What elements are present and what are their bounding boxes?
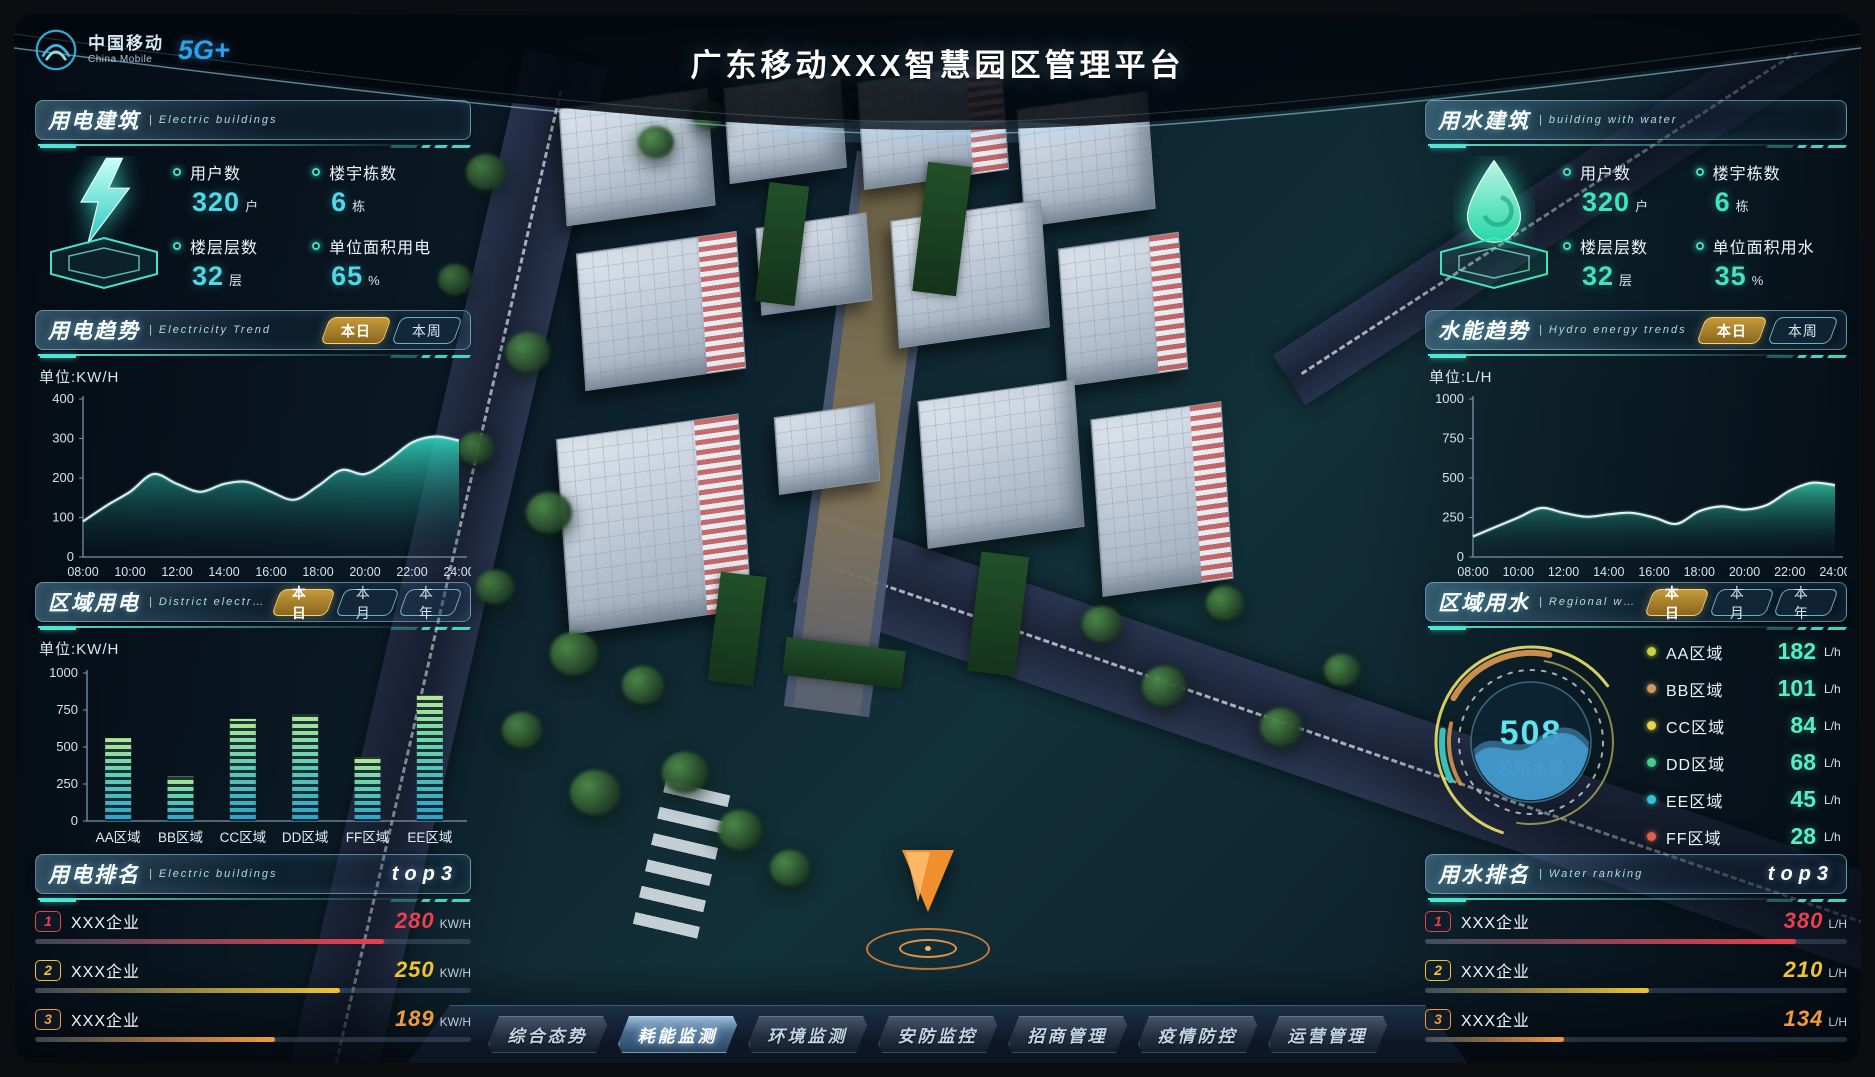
legend-dot-icon	[1647, 758, 1656, 767]
time-range-tabs: 本日本周	[325, 317, 458, 344]
svg-text:200: 200	[52, 470, 74, 485]
rank-badge: 2	[1425, 960, 1451, 981]
ranking-row: 3XXX企业134L/H	[1425, 1006, 1847, 1042]
legend-dot-icon	[1647, 647, 1656, 656]
svg-text:1000: 1000	[49, 665, 78, 680]
rank-progress-track	[35, 939, 471, 944]
svg-text:AA区域: AA区域	[96, 830, 141, 845]
rank-badge: 3	[35, 1009, 61, 1030]
building	[576, 231, 746, 391]
tree	[770, 850, 810, 886]
nav-tab-2[interactable]: 耗能监测	[618, 1016, 737, 1053]
svg-text:08:00: 08:00	[1457, 565, 1488, 579]
panel-water-building: 用水建筑 | building with water 用户数320户楼宇栋数6栋…	[1425, 100, 1847, 292]
panel-title: 区域用水	[1438, 587, 1530, 617]
svg-text:22:00: 22:00	[1774, 565, 1805, 579]
panel-electricity-trend: 用电趋势 | Electricity Trend 本日本周 单位:KW/H 01…	[35, 310, 471, 590]
svg-text:14:00: 14:00	[208, 565, 239, 579]
svg-text:12:00: 12:00	[1548, 565, 1579, 579]
rank-progress-fill	[35, 1037, 275, 1042]
stat-item: 楼宇栋数6栋	[312, 160, 471, 218]
rank-badge: 1	[1425, 911, 1451, 932]
ranking-row: 2XXX企业250KW/H	[35, 957, 471, 993]
svg-text:14:00: 14:00	[1593, 565, 1624, 579]
building	[917, 379, 1084, 549]
rank-progress-fill	[1425, 988, 1649, 993]
svg-text:0: 0	[71, 813, 78, 828]
electricity-trend-chart: 010020030040008:0010:0012:0014:0016:0018…	[35, 389, 471, 590]
svg-text:16:00: 16:00	[255, 565, 286, 579]
svg-text:750: 750	[56, 702, 78, 717]
time-tab-3[interactable]: 本年	[1773, 589, 1839, 616]
rank-progress-track	[1425, 988, 1847, 993]
ranking-row: 2XXX企业210L/H	[1425, 957, 1847, 993]
panel-title: 用水排名	[1438, 859, 1530, 889]
svg-text:400: 400	[52, 391, 74, 406]
svg-text:CC区域: CC区域	[220, 830, 266, 845]
panel-header: 用水建筑 | building with water	[1425, 100, 1847, 140]
panel-subtitle: | Electricity Trend	[149, 324, 271, 336]
electricity-ranking-list: 1XXX企业280KW/H2XXX企业250KW/H3XXX企业189KW/H	[35, 894, 471, 1042]
panel-header: 用电排名 | Electric buildings top3	[35, 854, 471, 894]
bullet-icon	[1696, 168, 1704, 176]
time-tab-1[interactable]: 本日	[320, 317, 392, 344]
panel-title: 用电排名	[48, 859, 140, 889]
svg-text:0: 0	[67, 549, 74, 564]
bullet-icon	[1563, 168, 1571, 176]
rank-progress-track	[35, 1037, 471, 1042]
legend-dot-icon	[1647, 684, 1656, 693]
time-tab-1[interactable]: 本日	[271, 589, 335, 616]
legend-dot-icon	[1647, 832, 1656, 841]
panel-title: 用电建筑	[48, 105, 140, 135]
tree	[622, 666, 664, 704]
tree	[662, 752, 708, 793]
legend-dot-icon	[1647, 721, 1656, 730]
stat-item: 楼层层数32层	[173, 234, 308, 292]
svg-text:20:00: 20:00	[1729, 565, 1760, 579]
unit-label: 单位:KW/H	[39, 638, 471, 659]
panel-subtitle: | Regional water	[1539, 596, 1640, 608]
crosswalk	[632, 781, 731, 944]
top3-badge: top3	[1768, 863, 1834, 886]
building	[774, 403, 881, 495]
total-water-gauge: 508总用水量	[1425, 634, 1637, 851]
hydro-trend-chart: 0250500750100008:0010:0012:0014:0016:001…	[1425, 389, 1847, 590]
legend-item: DD区域68L/h	[1647, 749, 1847, 776]
rank-badge: 1	[35, 911, 61, 932]
electric-building-stats: 用户数320户楼宇栋数6栋楼层层数32层单位面积用电65%	[173, 156, 471, 292]
stat-item: 楼层层数32层	[1563, 234, 1692, 292]
tree	[692, 100, 724, 129]
svg-text:500: 500	[56, 739, 78, 754]
panel-subtitle: | building with water	[1539, 114, 1677, 126]
nav-tab-3[interactable]: 环境监测	[748, 1016, 867, 1053]
panel-header: 水能趋势 | Hydro energy trends 本日本周	[1425, 310, 1847, 350]
stat-item: 用户数320户	[173, 160, 308, 218]
svg-text:18:00: 18:00	[1684, 565, 1715, 579]
time-range-tabs: 本日本月本年	[276, 589, 458, 616]
rank-badge: 2	[35, 960, 61, 981]
panel-subtitle: | Water ranking	[1539, 868, 1643, 880]
svg-text:FF区域: FF区域	[346, 830, 390, 845]
svg-text:18:00: 18:00	[302, 565, 333, 579]
building	[1090, 401, 1233, 597]
svg-text:20:00: 20:00	[349, 565, 380, 579]
svg-text:16:00: 16:00	[1638, 565, 1669, 579]
panel-subtitle: | Electric buildings	[149, 868, 277, 880]
legend-item: FF区域28L/h	[1647, 823, 1847, 850]
stat-item: 楼宇栋数6栋	[1696, 160, 1847, 218]
tree	[550, 632, 598, 675]
svg-text:300: 300	[52, 431, 74, 446]
dashboard-frame: 中国移动 China Mobile 5G+ 广东移动XXX智慧园区管理平台 用电…	[14, 14, 1861, 1063]
panel-header: 用电建筑 | Electric buildings	[35, 100, 471, 140]
bottom-navigation: 综合态势耗能监测环境监测安防监控招商管理疫情防控运营管理	[488, 1016, 1387, 1053]
stat-item: 单位面积用水35%	[1696, 234, 1847, 292]
bullet-icon	[1696, 242, 1704, 250]
bullet-icon	[173, 168, 181, 176]
svg-text:24:00: 24:00	[443, 565, 471, 579]
panel-subtitle: | Hydro energy trends	[1539, 324, 1687, 336]
rank-progress-fill	[35, 988, 340, 993]
rank-progress-track	[35, 988, 471, 993]
rank-progress-fill	[35, 939, 384, 944]
panel-header: 区域用水 | Regional water 本日本月本年	[1425, 582, 1847, 622]
water-ranking-list: 1XXX企业380L/H2XXX企业210L/H3XXX企业134L/H	[1425, 894, 1847, 1042]
svg-text:250: 250	[1442, 510, 1464, 525]
tree	[1324, 654, 1360, 686]
svg-text:0: 0	[1457, 549, 1464, 564]
legend-item: BB区域101L/h	[1647, 675, 1847, 702]
svg-text:10:00: 10:00	[114, 565, 145, 579]
tree	[718, 810, 762, 850]
district-electricity-chart: 02505007501000AA区域BB区域CC区域DD区域FF区域EE区域	[35, 661, 471, 858]
lightning-icon	[35, 156, 173, 292]
legend-dot-icon	[1647, 795, 1656, 804]
water-drop-icon	[1425, 156, 1563, 292]
nav-tab-5[interactable]: 招商管理	[1008, 1016, 1127, 1053]
panel-electricity-ranking: 用电排名 | Electric buildings top3 1XXX企业280…	[35, 854, 471, 1042]
bullet-icon	[312, 168, 320, 176]
svg-text:EE区域: EE区域	[407, 830, 452, 845]
time-range-tabs: 本日本周	[1701, 317, 1834, 344]
rank-progress-track	[1425, 939, 1847, 944]
panel-title: 水能趋势	[1438, 315, 1530, 345]
svg-text:22:00: 22:00	[396, 565, 427, 579]
panel-electric-building: 用电建筑 | Electric buildings 用户数320户楼宇栋数6栋楼…	[35, 100, 471, 292]
rank-progress-fill	[1425, 939, 1796, 944]
time-tab-2[interactable]: 本周	[391, 317, 463, 344]
svg-text:500: 500	[1442, 470, 1464, 485]
nav-tab-1[interactable]: 综合态势	[488, 1016, 607, 1053]
building	[723, 72, 847, 184]
tree	[1206, 586, 1244, 620]
tree	[1260, 708, 1302, 746]
legend-item: CC区域84L/h	[1647, 712, 1847, 739]
svg-text:250: 250	[56, 776, 78, 791]
nav-tab-6[interactable]: 疫情防控	[1138, 1016, 1257, 1053]
ranking-row: 1XXX企业380L/H	[1425, 908, 1847, 944]
ranking-row: 3XXX企业189KW/H	[35, 1006, 471, 1042]
water-legend: AA区域182L/hBB区域101L/hCC区域84L/hDD区域68L/hEE…	[1637, 634, 1847, 851]
svg-text:BB区域: BB区域	[158, 830, 203, 845]
panel-hydro-trend: 水能趋势 | Hydro energy trends 本日本周 单位:L/H 0…	[1425, 310, 1847, 590]
svg-text:1000: 1000	[1435, 391, 1464, 406]
bullet-icon	[1563, 242, 1571, 250]
bullet-icon	[173, 242, 181, 250]
time-tab-2[interactable]: 本周	[1767, 317, 1839, 344]
rank-progress-fill	[1425, 1037, 1564, 1042]
svg-text:DD区域: DD区域	[282, 830, 329, 845]
ranking-row: 1XXX企业280KW/H	[35, 908, 471, 944]
svg-text:08:00: 08:00	[67, 565, 98, 579]
time-tab-1[interactable]: 本日	[1644, 589, 1710, 616]
time-tab-2[interactable]: 本月	[1709, 589, 1775, 616]
nav-tab-4[interactable]: 安防监控	[878, 1016, 997, 1053]
panel-regional-water: 区域用水 | Regional water 本日本月本年 508总用水量 AA区…	[1425, 582, 1847, 851]
building	[1058, 232, 1189, 387]
panel-header: 用水排名 | Water ranking top3	[1425, 854, 1847, 894]
panel-title: 用水建筑	[1438, 105, 1530, 135]
panel-header: 区域用电 | District electricity 本日本月本年	[35, 582, 471, 622]
svg-text:10:00: 10:00	[1503, 565, 1534, 579]
time-tab-2[interactable]: 本月	[335, 589, 399, 616]
panel-subtitle: | District electricity	[149, 596, 267, 608]
panel-title: 区域用电	[48, 587, 140, 617]
rank-badge: 3	[1425, 1009, 1451, 1030]
stat-item: 单位面积用电65%	[312, 234, 471, 292]
time-tab-1[interactable]: 本日	[1696, 317, 1768, 344]
panel-header: 用电趋势 | Electricity Trend 本日本周	[35, 310, 471, 350]
panel-water-ranking: 用水排名 | Water ranking top3 1XXX企业380L/H2X…	[1425, 854, 1847, 1042]
svg-text:100: 100	[52, 510, 74, 525]
svg-text:750: 750	[1442, 431, 1464, 446]
location-marker-icon	[866, 850, 990, 970]
tree	[1082, 606, 1122, 642]
svg-text:24:00: 24:00	[1819, 565, 1847, 579]
unit-label: 单位:KW/H	[39, 366, 471, 387]
rank-progress-track	[1425, 1037, 1847, 1042]
legend-item: AA区域182L/h	[1647, 638, 1847, 665]
panel-subtitle: | Electric buildings	[149, 114, 277, 126]
unit-label: 单位:L/H	[1429, 366, 1847, 387]
top3-badge: top3	[392, 863, 458, 886]
tree	[570, 770, 620, 815]
tree	[1142, 666, 1186, 706]
bullet-icon	[312, 242, 320, 250]
total-water-gauge-chart: 508总用水量	[1425, 634, 1637, 846]
legend-item: EE区域45L/h	[1647, 786, 1847, 813]
panel-title: 用电趋势	[48, 315, 140, 345]
nav-tab-7[interactable]: 运营管理	[1268, 1016, 1387, 1053]
panel-district-electricity: 区域用电 | District electricity 本日本月本年 单位:KW…	[35, 582, 471, 858]
water-building-stats: 用户数320户楼宇栋数6栋楼层层数32层单位面积用水35%	[1563, 156, 1847, 292]
svg-text:12:00: 12:00	[161, 565, 192, 579]
time-tab-3[interactable]: 本年	[398, 589, 462, 616]
time-range-tabs: 本日本月本年	[1649, 589, 1834, 616]
stat-item: 用户数320户	[1563, 160, 1692, 218]
